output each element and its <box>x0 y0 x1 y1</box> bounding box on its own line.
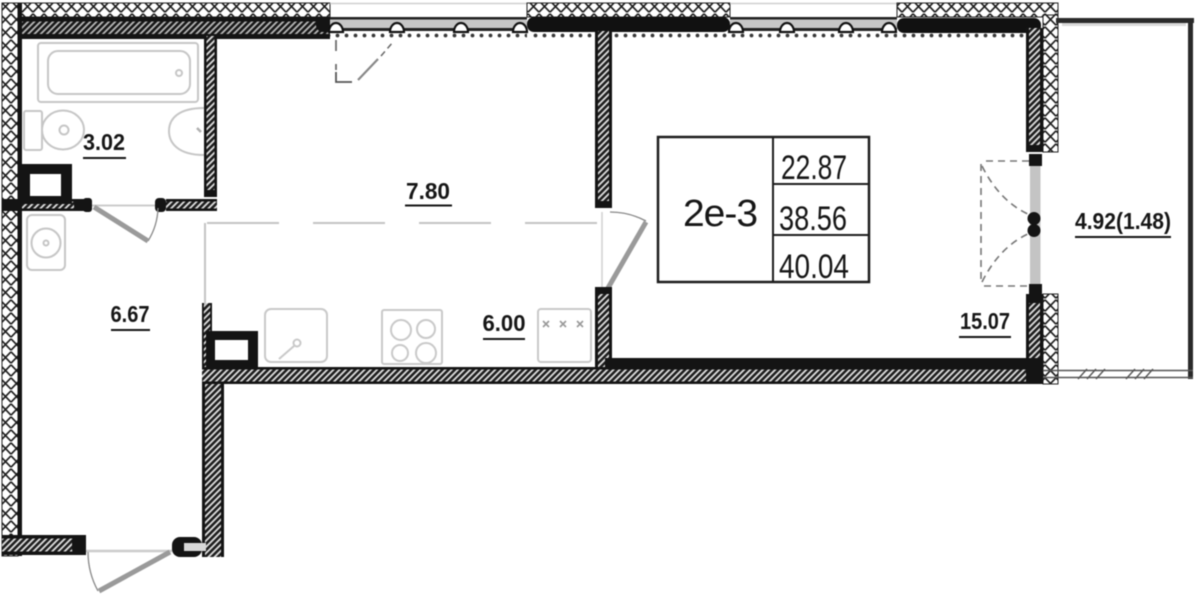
svg-text:15.07: 15.07 <box>960 308 1010 334</box>
svg-text:40.04: 40.04 <box>779 248 849 286</box>
svg-text:3.02: 3.02 <box>83 129 125 155</box>
svg-text:6.67: 6.67 <box>111 301 150 327</box>
svg-text:22.87: 22.87 <box>781 149 847 187</box>
svg-text:2e-3: 2e-3 <box>683 193 757 235</box>
svg-text:7.80: 7.80 <box>406 178 450 204</box>
svg-text:38.56: 38.56 <box>779 200 847 238</box>
svg-text:6.00: 6.00 <box>483 310 526 336</box>
svg-text:4.92(1.48): 4.92(1.48) <box>1075 208 1171 234</box>
